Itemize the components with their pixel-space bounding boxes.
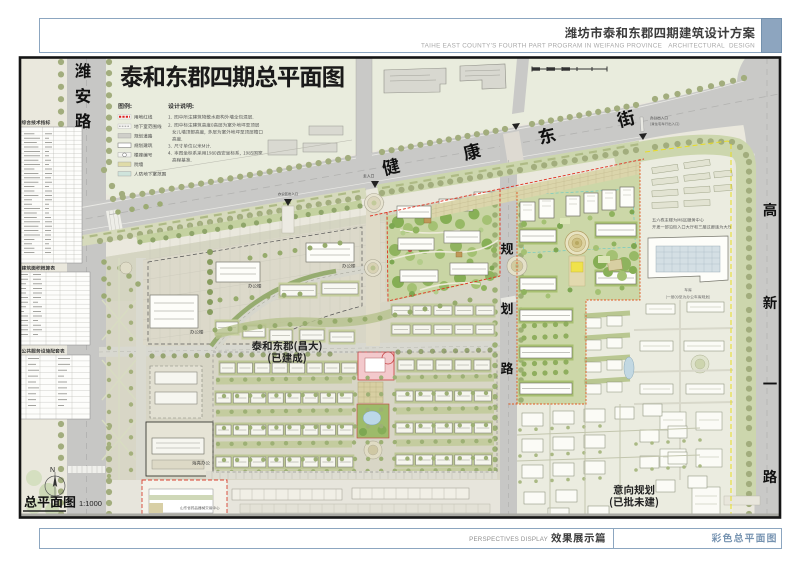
- svg-text:1:1000: 1:1000: [79, 499, 102, 508]
- svg-text:TAIHE EAST COUNTY'S FOURTH PAR: TAIHE EAST COUNTY'S FOURTH PART PROGRAM …: [421, 43, 755, 50]
- svg-text:PERSPECTIVES DISPLAY: PERSPECTIVES DISPLAY: [469, 536, 548, 543]
- svg-text:N: N: [50, 467, 55, 474]
